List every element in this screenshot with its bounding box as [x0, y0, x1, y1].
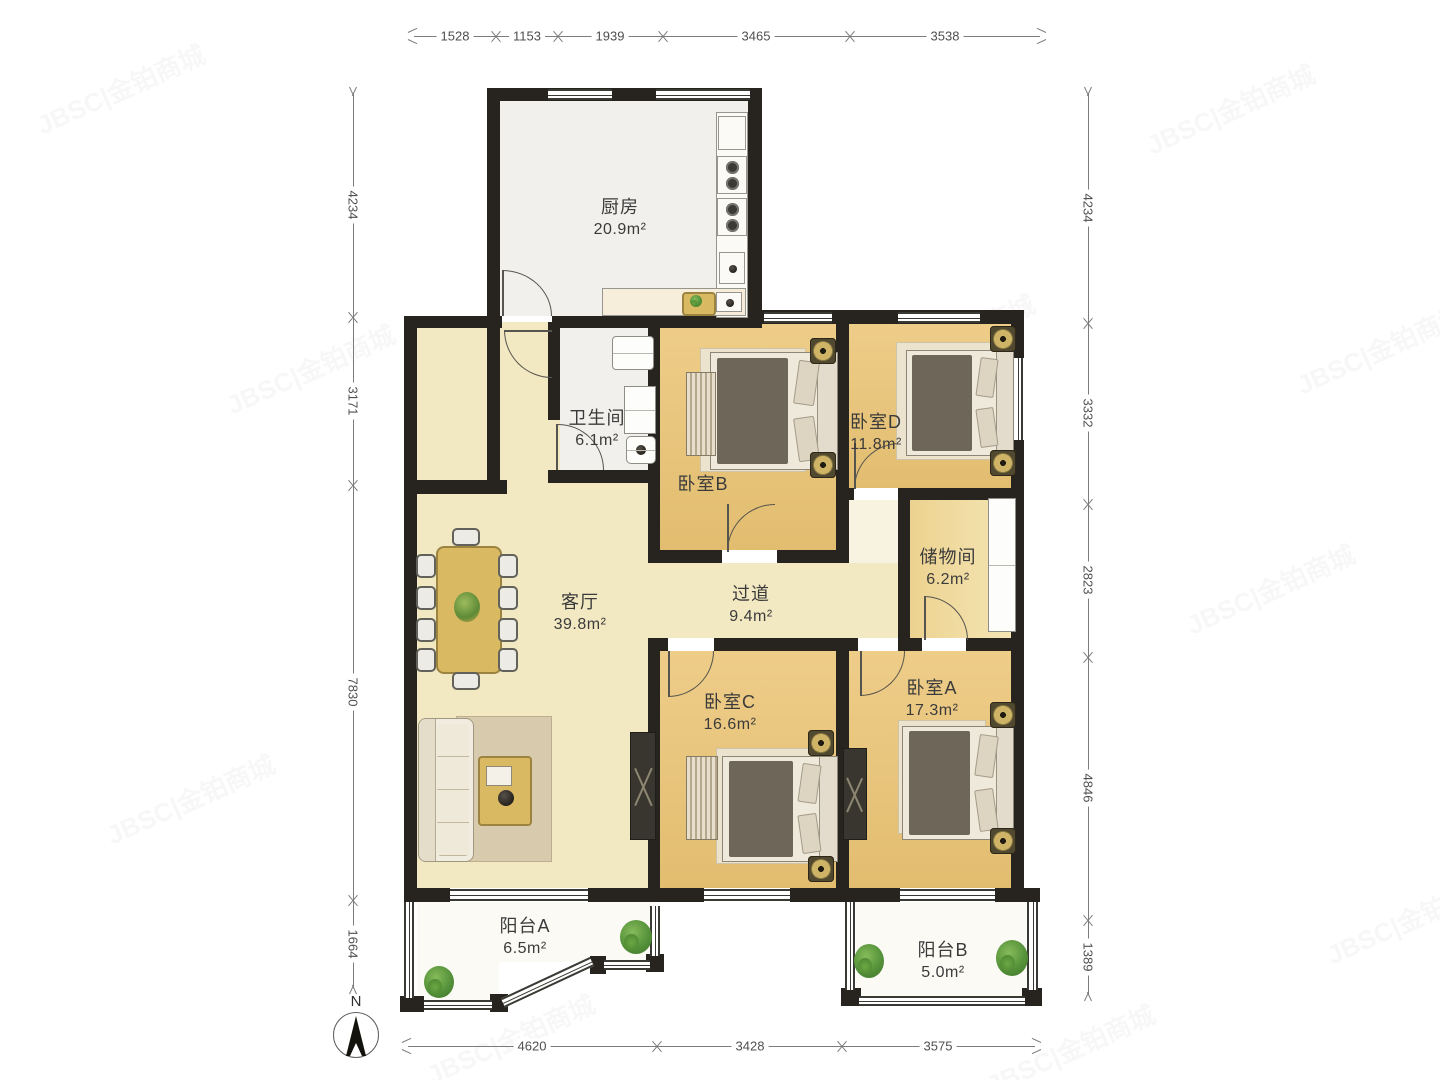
wall-segment [548, 470, 660, 483]
duvet [729, 761, 793, 857]
room-label-balcony-a: 阳台A 6.5m² [499, 912, 550, 958]
nightstand-speaker-icon [808, 856, 834, 882]
dim-value: 3171 [346, 383, 361, 420]
bathroom-door-leaf [556, 424, 558, 470]
dim-arrow [407, 29, 421, 43]
tv-cabinet [630, 732, 656, 840]
dim-arrow [1081, 988, 1095, 1002]
dim-tick [346, 478, 360, 492]
balcony-glass [501, 957, 594, 1007]
room-name: 卧室B [677, 470, 728, 496]
dining-chair [416, 618, 436, 642]
kitchen-door-leaf [502, 270, 504, 316]
nightstand-speaker-icon [810, 452, 836, 478]
burner-icon [726, 219, 739, 232]
watermark: JBSC|金铂商城 [1320, 865, 1440, 972]
watermark: JBSC|金铂商城 [1180, 535, 1360, 642]
sofa [418, 718, 474, 862]
wardrobe-dark [843, 748, 867, 840]
dim-tick [346, 893, 360, 907]
dim-value: 4234 [1081, 190, 1096, 227]
room-area: 9.4m² [729, 608, 772, 626]
dim-value: 7830 [346, 674, 361, 711]
room-label-living: 客厅 39.8m² [554, 588, 607, 634]
headboard [996, 351, 1013, 455]
wall-segment [404, 888, 450, 902]
dining-chair [498, 618, 518, 642]
wall-segment [404, 480, 507, 494]
balcony-door-window [450, 889, 588, 901]
vanity-sink [624, 386, 656, 434]
room-name: 卧室D [850, 408, 902, 434]
room-label-bedroom-b: 卧室B [677, 470, 728, 498]
north-label: N [351, 993, 362, 1010]
dining-chair [498, 648, 518, 672]
room-label-storage: 储物间 6.2m² [920, 543, 977, 589]
stove [717, 198, 747, 236]
balcony-post [841, 988, 861, 1006]
dim-arrow [1033, 29, 1047, 43]
wall-segment [845, 488, 854, 500]
dim-value: 1153 [509, 29, 545, 44]
wall-segment [588, 888, 704, 902]
watermark: JBSC|金铂商城 [1290, 295, 1440, 402]
balcony-glass [404, 902, 414, 998]
dim-value: 1939 [592, 29, 629, 44]
dim-arrow [1081, 86, 1095, 100]
dim-value: 3575 [920, 1039, 957, 1054]
floorplan-canvas: JBSC|金铂商城 JBSC|金铂商城 JBSC|金铂商城 JBSC|金铂商城 … [0, 0, 1440, 1080]
wall-segment [652, 550, 722, 563]
balcony-post [1022, 988, 1042, 1006]
room-name: 卫生间 [569, 404, 626, 430]
entry-door-leaf [504, 330, 552, 332]
window [548, 89, 612, 100]
window [898, 312, 980, 323]
dim-tick [1081, 913, 1095, 927]
dim-value: 1664 [346, 926, 361, 963]
table-centerpiece-icon [454, 592, 480, 622]
room-name: 客厅 [554, 588, 607, 614]
fridge [718, 116, 746, 150]
room-name: 厨房 [594, 193, 647, 219]
storage-door-leaf [924, 596, 926, 640]
dim-tick [489, 29, 503, 43]
north-arrow-icon [346, 1016, 366, 1056]
bedroom-a-door-leaf [860, 651, 862, 696]
dining-chair [416, 554, 436, 578]
kettle-icon [498, 790, 514, 806]
watermark: JBSC|金铂商城 [30, 35, 210, 142]
bedroom-c-door-leaf [668, 651, 670, 697]
drain-icon [726, 299, 734, 307]
wall-segment [404, 316, 417, 902]
plant-icon [424, 966, 454, 998]
dining-chair [498, 554, 518, 578]
room-area: 6.2m² [920, 571, 977, 589]
dining-chair [498, 586, 518, 610]
room-name: 储物间 [920, 543, 977, 569]
watermark: JBSC|金铂商城 [220, 315, 400, 422]
drain-icon [729, 265, 737, 273]
room-label-kitchen: 厨房 20.9m² [594, 193, 647, 239]
room-area: 17.3m² [906, 702, 959, 720]
bed [722, 756, 838, 862]
room-area: 39.8m² [554, 616, 607, 634]
counter-plant-icon [690, 295, 702, 307]
pillow [797, 763, 821, 805]
dim-value: 3428 [732, 1039, 769, 1054]
watermark: JBSC|金铂商城 [980, 995, 1160, 1080]
balcony-glass [424, 1000, 492, 1010]
dim-value: 3465 [738, 29, 775, 44]
wardrobe [686, 372, 716, 456]
balcony-door-window [900, 889, 995, 901]
stove [717, 156, 747, 194]
nightstand-speaker-icon [810, 338, 836, 364]
wall-segment [714, 638, 858, 651]
burner-icon [726, 161, 739, 174]
dim-tick [1081, 650, 1095, 664]
dim-tick [1081, 316, 1095, 330]
nightstand-speaker-icon [990, 702, 1016, 728]
burner-icon [726, 177, 739, 190]
room-label-bedroom-d: 卧室D 11.8m² [850, 408, 902, 454]
dim-arrow [401, 1039, 415, 1053]
dim-tick [656, 29, 670, 43]
room-name: 卧室A [906, 674, 959, 700]
dim-value: 1528 [437, 29, 474, 44]
toilet [626, 436, 656, 464]
dim-tick [1081, 497, 1095, 511]
balcony-post [400, 996, 424, 1012]
bench [686, 756, 718, 840]
coffee-table [478, 756, 532, 826]
balcony-glass [859, 996, 1025, 1006]
room-label-bedroom-c: 卧室C 16.6m² [704, 688, 757, 734]
balcony-glass [650, 906, 660, 956]
kitchen-sink [719, 252, 745, 284]
dim-tick [650, 1039, 664, 1053]
hallway-floor [660, 563, 898, 638]
headboard [996, 727, 1014, 839]
dim-tick [551, 29, 565, 43]
wall-segment [777, 550, 845, 563]
dining-chair [416, 586, 436, 610]
sink [716, 292, 742, 312]
dim-value: 2823 [1081, 562, 1096, 599]
wall-segment [748, 88, 762, 324]
room-label-balcony-b: 阳台B 5.0m² [917, 936, 968, 982]
dim-tick [346, 310, 360, 324]
nightstand-speaker-icon [990, 326, 1016, 352]
balcony-glass [845, 902, 855, 990]
dining-chair [452, 672, 480, 690]
dim-line [1088, 93, 1089, 995]
wall-segment [898, 488, 910, 651]
bed [906, 350, 1014, 456]
wall-segment [790, 888, 900, 902]
nightstand-speaker-icon [808, 730, 834, 756]
plant-icon [996, 940, 1028, 976]
watermark: JBSC|金铂商城 [1140, 55, 1320, 162]
room-area: 5.0m² [917, 964, 968, 982]
duvet [912, 355, 971, 451]
wall-segment [903, 638, 922, 651]
room-area: 20.9m² [594, 221, 647, 239]
room-name: 过道 [729, 580, 772, 606]
bedroom-b-door-leaf [727, 504, 729, 552]
toilet-bowl-icon [636, 445, 646, 455]
watermark: JBSC|金铂商城 [100, 745, 280, 852]
window [704, 889, 790, 901]
balcony-glass [604, 960, 650, 970]
burner-icon [726, 203, 739, 216]
window [656, 89, 750, 100]
dim-value: 3538 [927, 29, 964, 44]
dining-chair [416, 648, 436, 672]
window [764, 312, 832, 323]
bed [902, 726, 1014, 840]
room-area: 16.6m² [704, 716, 757, 734]
storage-cabinet [988, 498, 1016, 632]
room-area: 6.5m² [499, 940, 550, 958]
tray [486, 766, 512, 786]
washer [612, 336, 654, 370]
dim-value: 4846 [1081, 770, 1096, 807]
room-name: 阳台A [499, 912, 550, 938]
plant-icon [854, 944, 884, 978]
duvet [717, 358, 788, 465]
dim-tick [843, 29, 857, 43]
pillow [797, 813, 821, 855]
dim-value: 4234 [346, 187, 361, 224]
dim-value: 3332 [1081, 395, 1096, 432]
dim-value: 4620 [514, 1039, 551, 1054]
room-label-hallway: 过道 9.4m² [729, 580, 772, 626]
wall-segment [404, 316, 502, 328]
wall-segment [487, 88, 500, 487]
room-label-bedroom-a: 卧室A 17.3m² [906, 674, 959, 720]
duvet [909, 731, 971, 834]
nightstand-speaker-icon [990, 450, 1016, 476]
room-name: 阳台B [917, 936, 968, 962]
headboard [819, 757, 837, 861]
pillow [793, 360, 820, 406]
balcony-glass [1027, 902, 1038, 990]
dim-arrow [346, 86, 360, 100]
dim-line [353, 93, 354, 988]
dim-arrow [1028, 1039, 1042, 1053]
wall-segment [995, 888, 1040, 902]
dim-value: 1389 [1081, 939, 1096, 976]
nightstand-speaker-icon [990, 828, 1016, 854]
room-area: 11.8m² [850, 436, 902, 454]
room-area: 6.1m² [569, 432, 626, 450]
plant-icon [620, 920, 652, 954]
dim-tick [835, 1039, 849, 1053]
dining-chair [452, 528, 480, 546]
room-label-bathroom: 卫生间 6.1m² [569, 404, 626, 450]
room-name: 卧室C [704, 688, 757, 714]
